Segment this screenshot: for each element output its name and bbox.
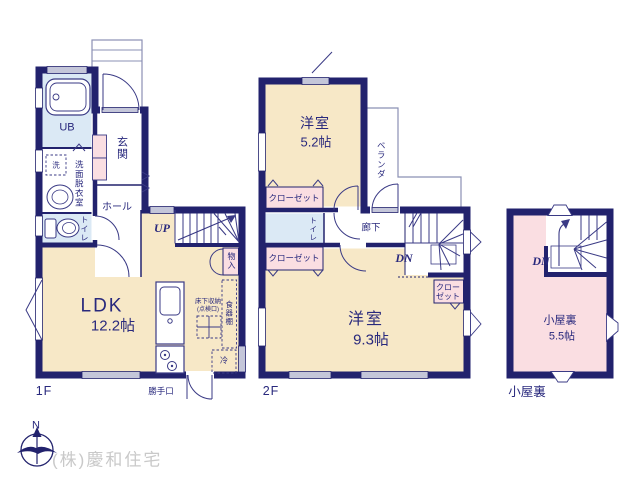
cupboard-label: 食器棚 bbox=[225, 300, 233, 326]
inspection-port-label: (点検口) bbox=[197, 307, 219, 313]
shoe-cabinet bbox=[93, 135, 107, 180]
bathtub-icon bbox=[46, 79, 90, 115]
stairs-down3-label: DN bbox=[532, 255, 549, 267]
ldk-size-label: 12.2帖 bbox=[91, 319, 135, 334]
entrance-porch bbox=[92, 40, 142, 110]
company-name: (株)慶和住宅 bbox=[52, 452, 162, 469]
room93-size-label: 9.3帖 bbox=[353, 333, 389, 348]
closet-a-label: クローゼット bbox=[268, 194, 319, 203]
room93-label: 洋室 bbox=[348, 312, 384, 328]
floorplan-drawing bbox=[0, 0, 640, 480]
floor2-plan bbox=[259, 52, 482, 379]
toilet1-icon bbox=[45, 219, 79, 238]
kitchen-counter bbox=[156, 282, 184, 373]
stove-icon bbox=[156, 346, 184, 373]
veranda-label: ベランダ bbox=[377, 141, 386, 179]
floor1-plan bbox=[26, 40, 246, 399]
ldk-label: LDK bbox=[81, 297, 124, 316]
attic-plan bbox=[510, 205, 618, 382]
attic-size-label: 5.5帖 bbox=[549, 332, 575, 343]
closet-c-label-line1: クロー bbox=[436, 284, 460, 292]
corridor-label: 廊下 bbox=[361, 223, 380, 233]
stairs-up-label: UP bbox=[154, 222, 170, 234]
closet-b-label: クローゼット bbox=[268, 254, 319, 263]
kitchen-sink-icon bbox=[160, 287, 180, 315]
floorplan-page: UB 洗 洗面脱衣室 トイレ 玄関 ホール UP 物入 LDK 12.2帖 床下… bbox=[0, 0, 640, 480]
storage-label: 物入 bbox=[227, 252, 235, 270]
stairs-down2-label: DN bbox=[395, 252, 412, 264]
hall-label: ホール bbox=[102, 203, 132, 213]
closet-c-label-line2: ゼット bbox=[436, 293, 460, 301]
north-compass-icon bbox=[17, 427, 57, 466]
toilet1-label: トイレ bbox=[80, 216, 88, 243]
washroom-label: 洗面脱衣室 bbox=[75, 160, 84, 208]
room52-label: 洋室 bbox=[300, 116, 330, 130]
toilet2-label: トイレ bbox=[309, 216, 317, 242]
washer-label: 洗 bbox=[52, 161, 60, 169]
fridge-label: 冷 bbox=[220, 357, 228, 365]
floor2-caption: 2F bbox=[263, 385, 280, 398]
toilet2-door-swing bbox=[334, 213, 360, 239]
entrance-door-swing bbox=[103, 74, 139, 110]
room52-size-label: 5.2帖 bbox=[300, 136, 331, 149]
compass-north-label: N bbox=[32, 421, 40, 432]
unit-bath-label: UB bbox=[59, 123, 74, 134]
washbasin-icon bbox=[47, 185, 73, 209]
backdoor-label: 勝手口 bbox=[148, 387, 174, 396]
underfloor-storage-label: 床下収納 bbox=[195, 299, 221, 306]
attic-room-label: 小屋裏 bbox=[544, 316, 577, 327]
attic-caption: 小屋裏 bbox=[508, 386, 546, 399]
entrance-label: 玄関 bbox=[116, 136, 127, 160]
floor1-caption: 1F bbox=[36, 385, 53, 398]
